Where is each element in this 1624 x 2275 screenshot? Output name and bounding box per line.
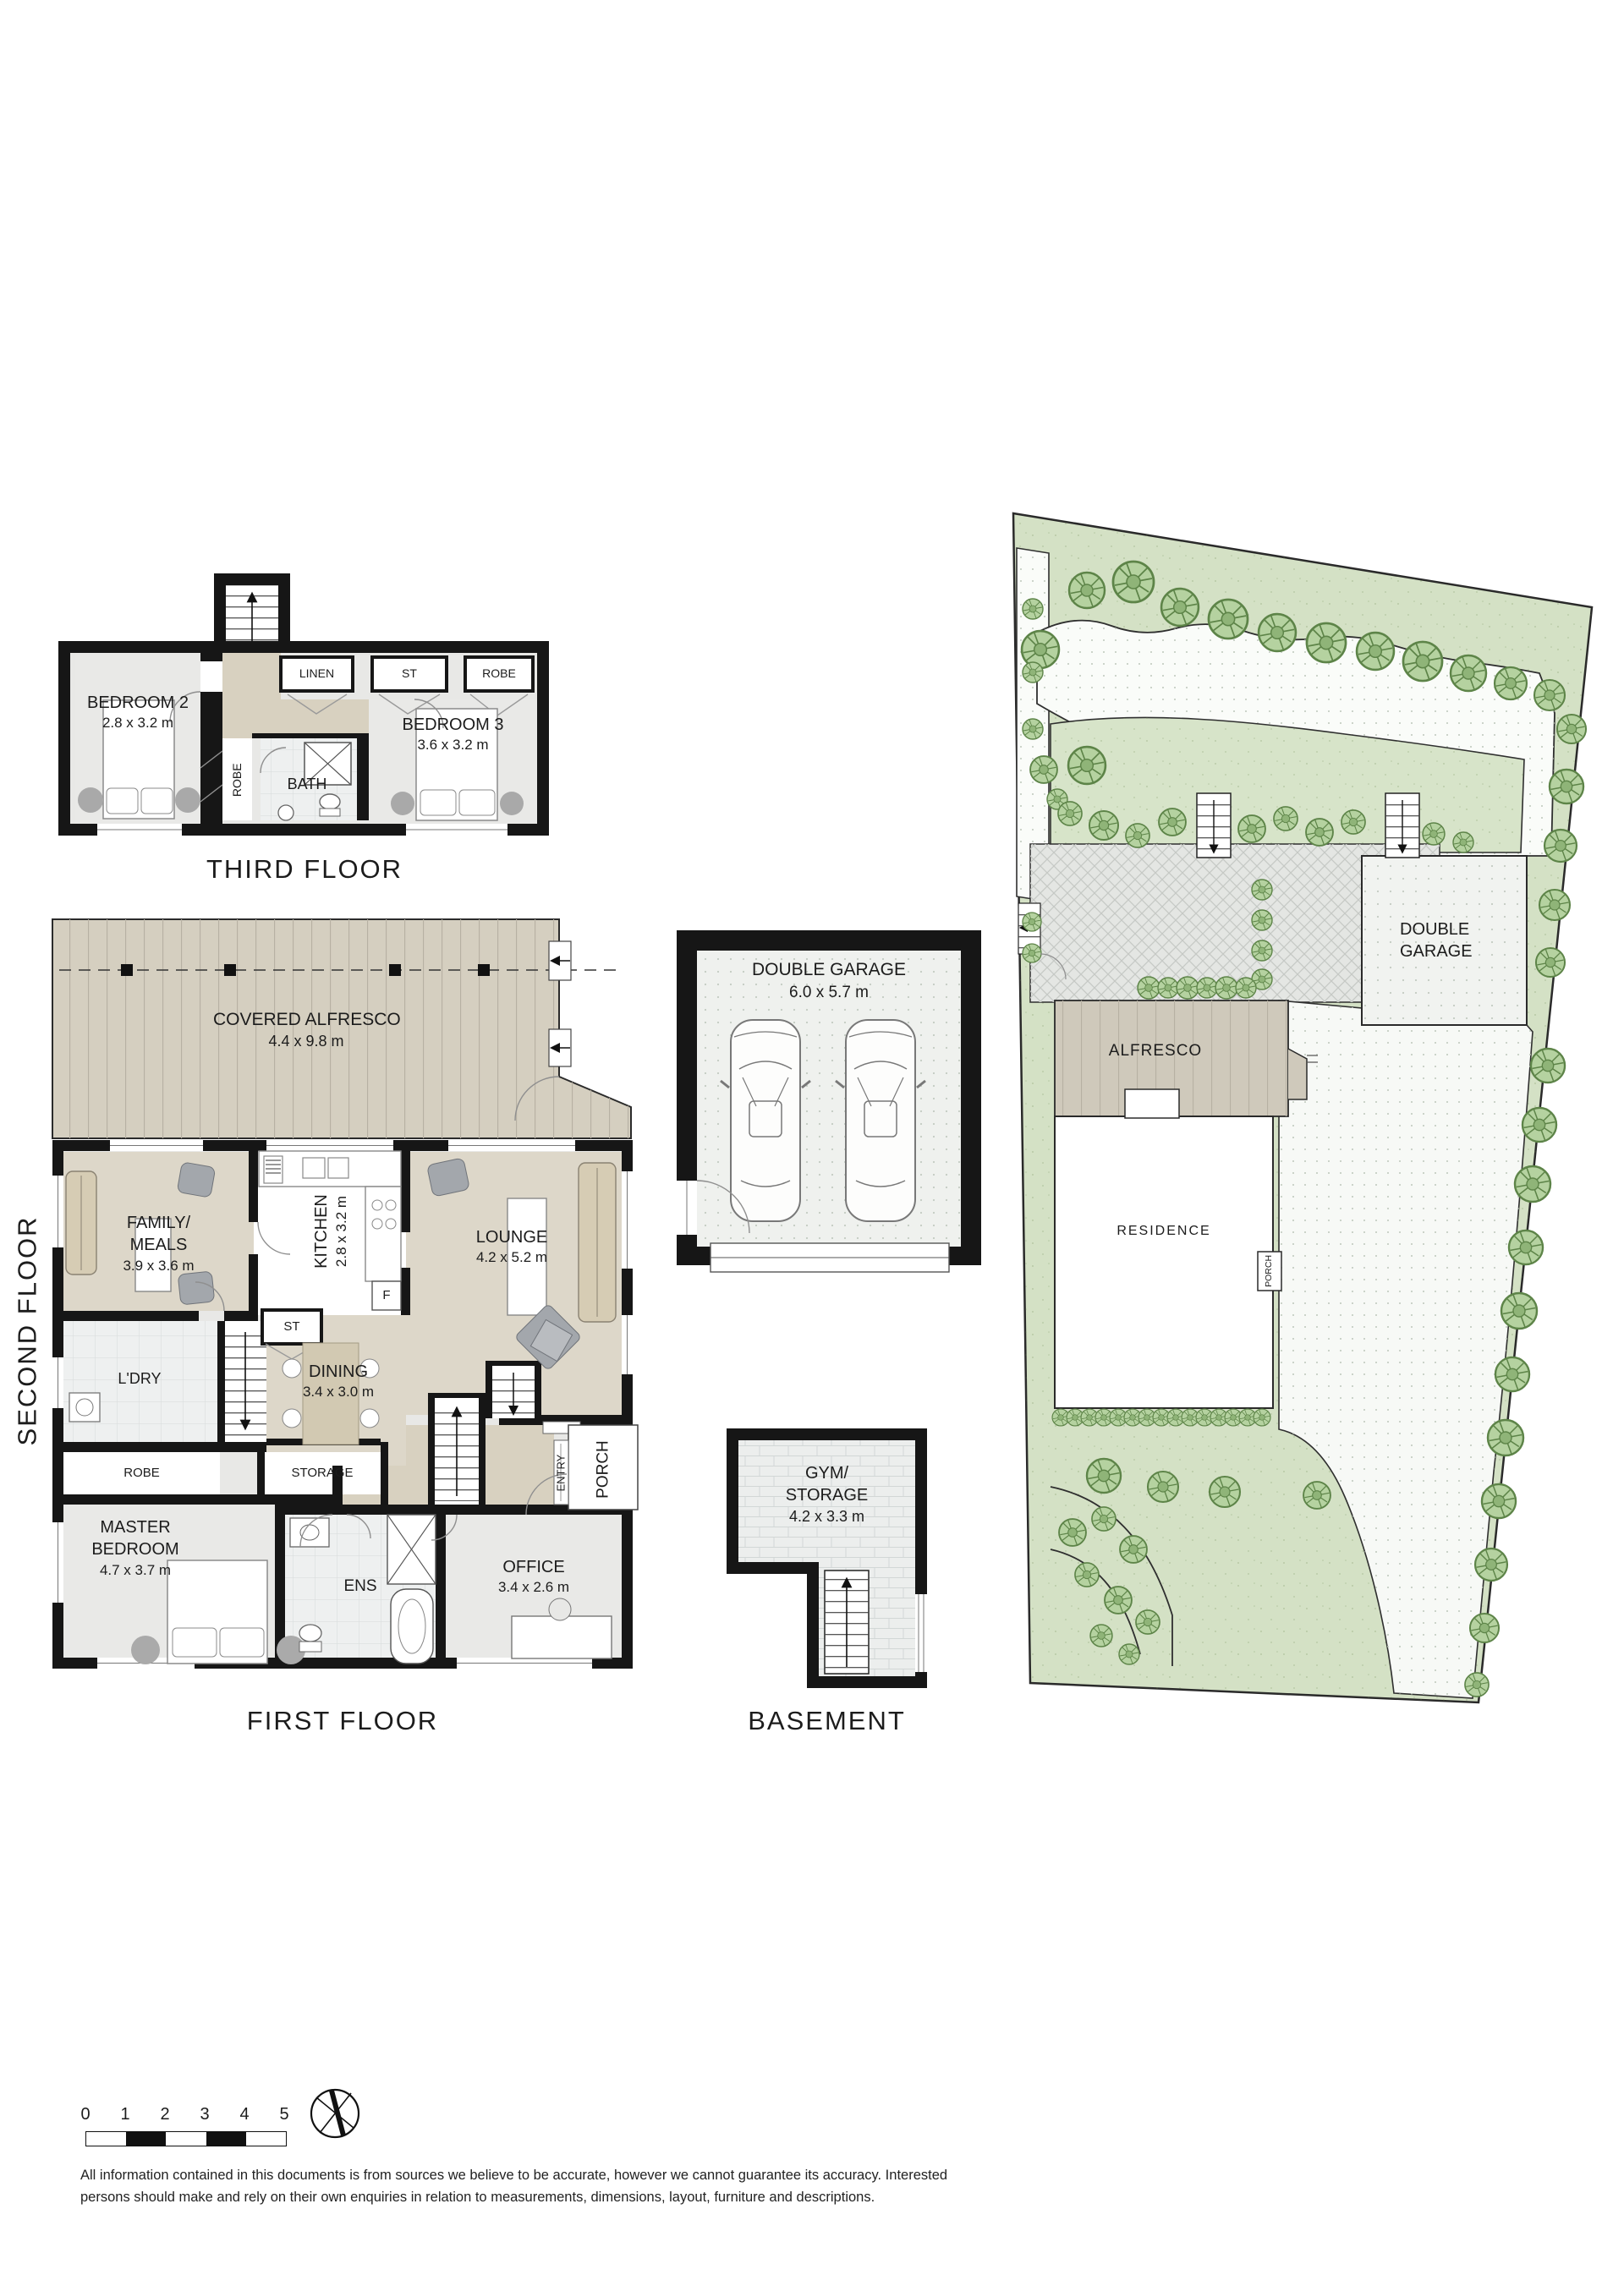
tree-icon (1252, 880, 1272, 900)
tree-icon (1023, 944, 1041, 962)
tree-icon (1274, 807, 1298, 831)
tree-icon (1522, 1108, 1556, 1142)
tree-icon (1158, 978, 1178, 998)
stairs-icon (214, 573, 290, 653)
tree-icon (1482, 1484, 1516, 1518)
room-label-master: MASTER BEDROOM 4.7 x 3.7 m (68, 1516, 203, 1580)
tree-icon (1303, 1482, 1330, 1509)
tree-icon (1475, 1549, 1507, 1581)
scale-label: 2 (156, 2103, 173, 2125)
scale-label: 4 (236, 2103, 253, 2125)
room-label-storage: STORAGE (264, 1465, 381, 1482)
scale-segment (166, 2132, 206, 2146)
room-name: BEDROOM (68, 1538, 203, 1560)
room-label-laundry: L'DRY (76, 1369, 203, 1390)
room-dims: 2.8 x 3.2 m (332, 1164, 351, 1299)
room-label-family: FAMILY/ MEALS 3.9 x 3.6 m (85, 1212, 233, 1275)
tree-icon (1177, 977, 1199, 999)
tree-icon (1307, 623, 1346, 662)
tree-icon (1465, 1673, 1489, 1697)
tree-icon (1488, 1420, 1523, 1455)
room-label-bedroom3: BEDROOM 3 3.6 x 3.2 m (369, 714, 537, 755)
plan-title-third-floor: THIRD FLOOR (51, 852, 558, 887)
room-label-dining: DINING 3.4 x 3.0 m (254, 1361, 423, 1402)
opening (915, 1594, 927, 1672)
tree-icon (1136, 1610, 1160, 1634)
tree-icon (1161, 589, 1199, 626)
tree-icon (1119, 1644, 1139, 1664)
tree-icon (1023, 599, 1043, 619)
fridge-label: F (372, 1287, 401, 1304)
scale-label: 5 (276, 2103, 293, 2125)
tree-icon (1495, 1357, 1529, 1391)
site-label: DOUBLE (1400, 918, 1501, 940)
tree-icon (1069, 573, 1105, 608)
room-name: OFFICE (449, 1556, 618, 1578)
disclaimer-line1: All information contained in this docume… (80, 2168, 947, 2184)
plan-title-first-floor: FIRST FLOOR (51, 1704, 634, 1739)
tree-icon (1451, 655, 1486, 691)
room-label-bath: BATH (261, 775, 354, 795)
tree-icon (1210, 1477, 1240, 1507)
tree-icon (1252, 940, 1272, 961)
tree-icon (1113, 562, 1154, 602)
scale-segment (206, 2132, 246, 2146)
tree-icon (1259, 614, 1296, 651)
scale-bar: 0 1 2 3 4 5 (80, 2103, 300, 2154)
tree-icon (1515, 1166, 1550, 1202)
tree-icon (1058, 802, 1082, 825)
room-name: MEALS (85, 1234, 233, 1256)
tree-icon (1534, 680, 1565, 710)
room-dims: 3.4 x 2.6 m (449, 1578, 618, 1597)
room-label-st: ST (372, 666, 447, 681)
room-label-alfresco: COVERED ALFRESCO 4.4 x 9.8 m (213, 1008, 399, 1051)
site-residence (1055, 1116, 1273, 1408)
tree-icon (1087, 1459, 1121, 1493)
room-label-bedroom2: BEDROOM 2 2.8 x 3.2 m (75, 692, 200, 733)
room-name: BEDROOM 2 (75, 692, 200, 714)
tree-icon (1550, 770, 1583, 803)
plan-title-basement: BASEMENT (723, 1704, 930, 1739)
tree-icon (1105, 1587, 1132, 1614)
room-dims: 3.4 x 3.0 m (254, 1383, 423, 1401)
tree-icon (1403, 642, 1442, 681)
scale-label: 0 (77, 2103, 94, 2125)
room-dims: 4.2 x 5.2 m (427, 1248, 596, 1267)
scale-segment (86, 2132, 126, 2146)
room-name: DINING (254, 1361, 423, 1383)
room-label-porch: PORCH (592, 1432, 613, 1508)
site-label: GARAGE (1400, 940, 1501, 962)
scale-label: 3 (196, 2103, 213, 2125)
room-label-ensuite: ENS (310, 1576, 411, 1597)
tree-icon (1023, 719, 1043, 739)
room-label-gym: GYM/ STORAGE 4.2 x 3.3 m (740, 1462, 913, 1527)
tree-icon (1138, 977, 1160, 999)
room-dims: 4.2 x 3.3 m (740, 1507, 913, 1527)
room-name: DOUBLE GARAGE (710, 958, 947, 982)
tree-icon (1470, 1614, 1499, 1642)
tree-icon (1197, 978, 1217, 998)
tree-icon (1089, 811, 1118, 840)
tree-icon (1544, 830, 1577, 862)
tree-icon (1501, 1293, 1537, 1329)
tree-icon (1357, 633, 1394, 670)
tree-icon (1536, 948, 1565, 977)
tree-icon (1423, 823, 1445, 845)
site-drawing (1007, 507, 1599, 1717)
tree-icon (1159, 809, 1186, 836)
stairs-icon (825, 1571, 869, 1674)
tree-icon (1557, 715, 1586, 743)
site-label-residence: RESIDENCE (1062, 1222, 1265, 1240)
tree-icon (1092, 1507, 1116, 1531)
tree-icon (1023, 662, 1043, 682)
tree-icon (1215, 977, 1237, 999)
room-name: STORAGE (740, 1484, 913, 1506)
tree-icon (1341, 810, 1365, 834)
tree-icon (1209, 600, 1248, 639)
garage-plan: DOUBLE GARAGE 6.0 x 5.7 m (677, 930, 981, 1277)
tree-icon (1254, 1409, 1270, 1426)
scale-bar-track (85, 2131, 287, 2146)
tree-icon (1306, 819, 1333, 846)
tree-icon (1252, 910, 1272, 930)
room-dims: 4.4 x 9.8 m (213, 1032, 399, 1052)
tree-icon (1495, 667, 1527, 699)
scale-segment (246, 2132, 286, 2146)
tree-icon (1059, 1519, 1086, 1546)
tree-icon (1453, 832, 1473, 852)
room-name: MASTER (68, 1516, 203, 1538)
room-label-st: ST (262, 1318, 321, 1335)
tree-icon (1023, 913, 1041, 931)
room-dims: 3.9 x 3.6 m (85, 1257, 233, 1275)
tree-icon (1531, 1049, 1565, 1083)
first-floor-plan: FAMILY/ MEALS 3.9 x 3.6 m KITCHEN 2.8 x … (51, 918, 634, 1691)
car-icon (836, 1020, 925, 1221)
plan-title-second-floor: SECOND FLOOR (11, 1195, 46, 1466)
basement-plan: GYM/ STORAGE 4.2 x 3.3 m (723, 1425, 930, 1696)
tree-icon (1148, 1472, 1178, 1502)
room-dims: 2.8 x 3.2 m (75, 714, 200, 732)
car-icon (721, 1020, 810, 1221)
tree-icon (1509, 1231, 1543, 1264)
tree-icon (1075, 1563, 1099, 1587)
room-label-kitchen: KITCHEN 2.8 x 3.2 m (310, 1164, 349, 1299)
tree-icon (1539, 890, 1570, 920)
room-name: GYM/ (740, 1462, 913, 1484)
room-label-office: OFFICE 3.4 x 2.6 m (449, 1556, 618, 1598)
room-label-lounge: LOUNGE 4.2 x 5.2 m (427, 1226, 596, 1268)
tree-icon (1030, 756, 1057, 783)
room-label-robe-top: ROBE (465, 666, 533, 681)
site-plan: DOUBLE GARAGE ALFRESCO RESIDENCE PORCH (1007, 507, 1599, 1717)
tree-icon (1068, 747, 1106, 784)
room-label-entry: ENTRY (553, 1439, 568, 1507)
room-dims: 6.0 x 5.7 m (710, 982, 947, 1003)
site-label-garage: DOUBLE GARAGE (1400, 918, 1501, 962)
room-name: KITCHEN (310, 1164, 332, 1299)
tree-icon (1022, 631, 1059, 668)
room-label-robe-mid: ROBE (229, 746, 244, 814)
site-residence-notch (1125, 1089, 1179, 1118)
scale-label: 1 (117, 2103, 134, 2125)
room-name: BEDROOM 3 (369, 714, 537, 736)
room-name: FAMILY/ (85, 1212, 233, 1234)
room-dims: 4.7 x 3.7 m (68, 1561, 203, 1580)
floorplan-sheet: BEDROOM 2 2.8 x 3.2 m LINEN ST ROBE ROBE… (0, 0, 1624, 2275)
third-floor-plan: BEDROOM 2 2.8 x 3.2 m LINEN ST ROBE ROBE… (51, 573, 558, 846)
tree-icon (1090, 1625, 1112, 1647)
room-dims: 3.6 x 3.2 m (369, 736, 537, 754)
scale-segment (126, 2132, 166, 2146)
room-label-linen: LINEN (281, 666, 353, 681)
tree-icon (1238, 815, 1265, 842)
site-label-alfresco: ALFRESCO (1088, 1040, 1223, 1061)
tree-icon (1120, 1536, 1147, 1563)
room-name: COVERED ALFRESCO (213, 1008, 399, 1032)
compass-icon (306, 2082, 365, 2145)
disclaimer-line2: persons should make and rely on their ow… (80, 2190, 875, 2206)
room-label-robe: ROBE (63, 1465, 220, 1482)
tree-icon (1236, 978, 1256, 998)
room-label-garage: DOUBLE GARAGE 6.0 x 5.7 m (710, 958, 947, 1003)
tree-icon (1126, 824, 1149, 847)
room-name: LOUNGE (427, 1226, 596, 1248)
site-label-porch: PORCH (1264, 1246, 1276, 1296)
